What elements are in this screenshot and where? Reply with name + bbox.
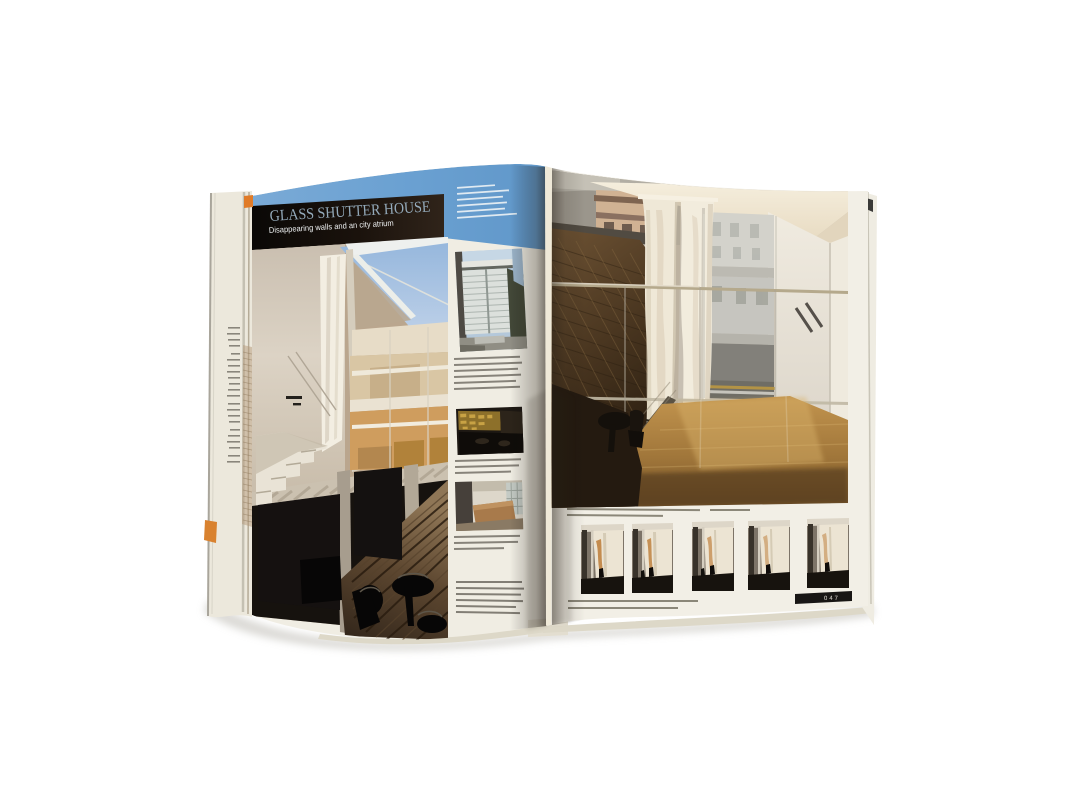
svg-text:047: 047 [824,596,840,602]
